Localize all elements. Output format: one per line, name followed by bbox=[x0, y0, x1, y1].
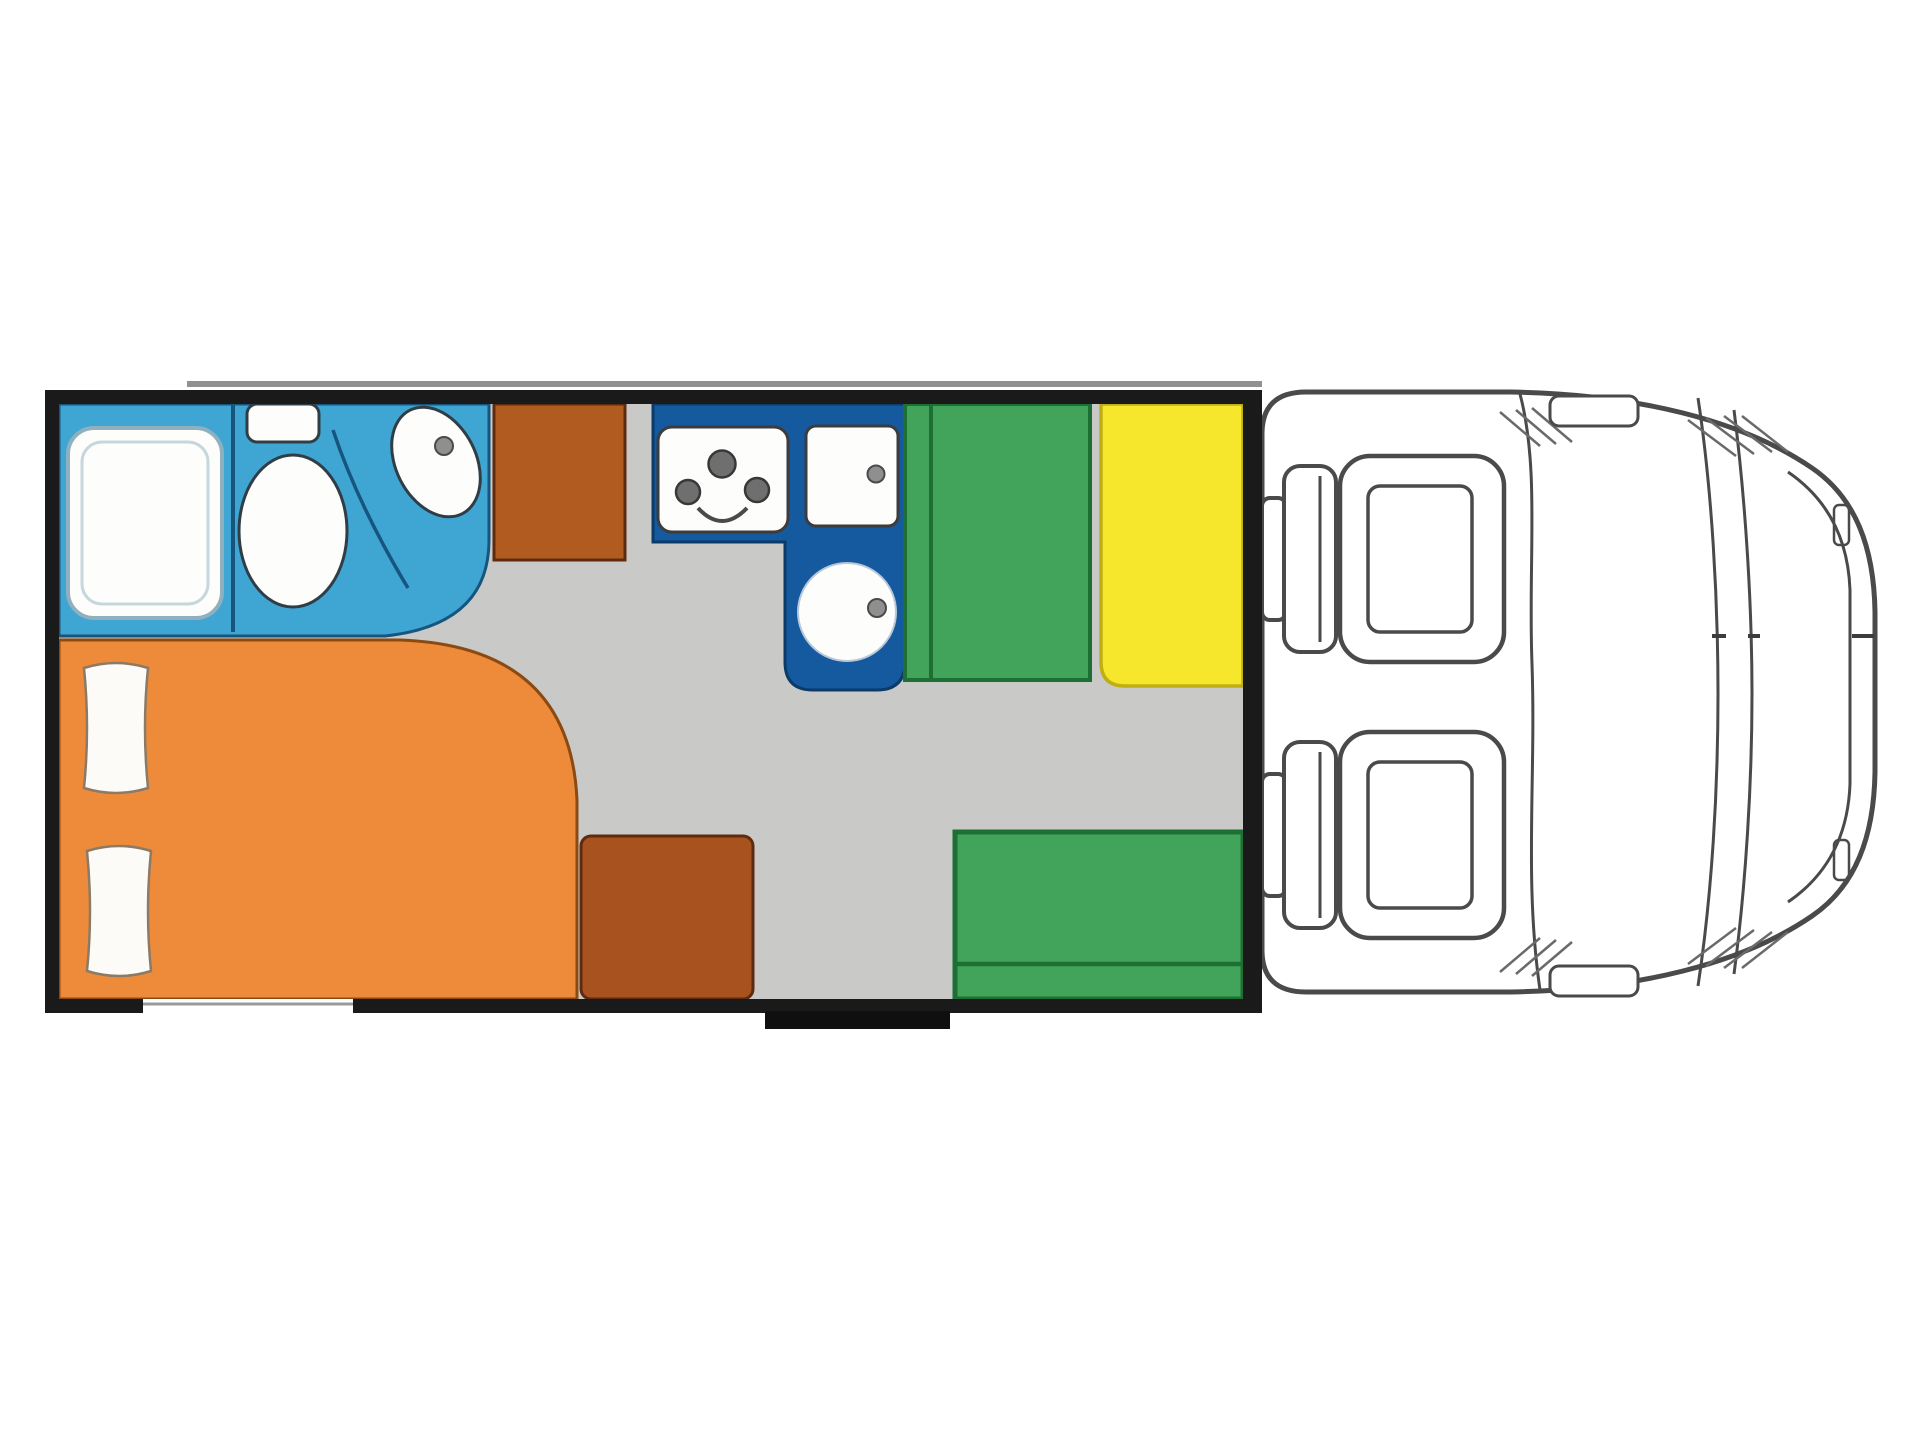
wall-right bbox=[1243, 390, 1262, 1013]
pillow bbox=[87, 846, 151, 976]
toilet-bowl bbox=[239, 455, 347, 607]
worktop-knob-icon bbox=[868, 466, 885, 483]
garage-hatch-gap bbox=[143, 999, 353, 1013]
cab-vent-top-icon bbox=[1550, 396, 1638, 426]
shower-tray bbox=[68, 428, 222, 618]
burner-left-icon bbox=[676, 480, 700, 504]
dinette-table bbox=[1101, 404, 1243, 686]
floorplan-canvas bbox=[0, 0, 1920, 1440]
wall-left bbox=[45, 390, 59, 1013]
burner-right-icon bbox=[745, 478, 769, 502]
bathroom bbox=[59, 392, 498, 636]
seat-backrest bbox=[1284, 742, 1336, 928]
seat-backrest bbox=[1284, 466, 1336, 652]
toilet-tank bbox=[247, 404, 319, 442]
washbasin-tap-icon bbox=[435, 437, 453, 455]
garage-hatch bbox=[143, 999, 353, 1013]
entry-step bbox=[765, 1011, 950, 1029]
cab-seat-top bbox=[1262, 456, 1504, 662]
awning-rail bbox=[187, 381, 1262, 387]
burner-center-icon bbox=[709, 451, 736, 478]
hob bbox=[658, 427, 788, 532]
bench-seat-rear bbox=[955, 832, 1243, 999]
pillow bbox=[84, 663, 148, 793]
wall-top bbox=[45, 390, 1262, 404]
living-area bbox=[45, 381, 1262, 1029]
cab bbox=[1262, 392, 1875, 996]
kitchen-tap-icon bbox=[868, 599, 886, 617]
wardrobe bbox=[494, 404, 625, 560]
bed bbox=[59, 640, 577, 999]
cab-seat-bottom bbox=[1262, 732, 1504, 938]
cab-vent-bottom-icon bbox=[1550, 966, 1638, 996]
storage-cabinet bbox=[581, 836, 753, 999]
